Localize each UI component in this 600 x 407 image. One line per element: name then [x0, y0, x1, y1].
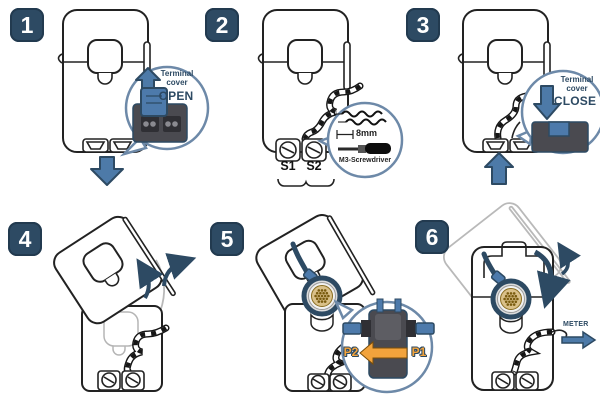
- terminal-cover-label: Terminal cover: [156, 70, 198, 87]
- close-action-label: CLOSE: [552, 95, 598, 108]
- slide-up-arrow: [485, 153, 513, 184]
- step-3-badge: 3: [406, 8, 440, 42]
- step-panel-5: P2 P1 5: [200, 200, 400, 407]
- terminal-bracket: [278, 179, 334, 186]
- step-2-number: 2: [216, 12, 229, 39]
- p2-label: P2: [341, 346, 361, 359]
- close-rotation-arrow: [562, 252, 568, 274]
- step-5-number: 5: [221, 226, 234, 253]
- step-2-badge: 2: [205, 8, 239, 42]
- terminal-s1-label: S1: [276, 160, 300, 174]
- cable-left: [343, 323, 361, 334]
- terminal-cover-label: Terminal cover: [556, 76, 598, 93]
- step-4-badge: 4: [8, 222, 42, 256]
- strip-length-label: 8mm: [356, 129, 384, 139]
- step-panel-2: S1 S2 8mm M3-Screwdriver 2: [200, 0, 400, 200]
- step-6-badge: 6: [415, 220, 449, 254]
- step-6-number: 6: [426, 224, 439, 251]
- step-panel-3: Terminal cover CLOSE 3: [400, 0, 600, 200]
- terminal-s2-label: S2: [302, 160, 326, 174]
- step-4-number: 4: [19, 226, 32, 253]
- step-1-number: 1: [21, 12, 34, 39]
- screwdriver-label: M3-Screwdriver: [333, 157, 397, 165]
- step-1-badge: 1: [10, 8, 44, 42]
- step-5-badge: 5: [210, 222, 244, 256]
- cover-notch: [549, 122, 569, 136]
- step-3-number: 3: [417, 12, 430, 39]
- step-panel-6: METER 6: [400, 200, 600, 407]
- open-action-label: OPEN: [154, 90, 198, 103]
- slide-down-arrow: [91, 157, 123, 185]
- screw-terminals: [308, 374, 351, 391]
- ct-installation-diagram: Terminal cover OPEN 1: [0, 0, 600, 407]
- step-panel-4: 4: [0, 200, 200, 407]
- step-panel-1: Terminal cover OPEN 1: [0, 0, 200, 200]
- meter-label: METER: [563, 321, 597, 329]
